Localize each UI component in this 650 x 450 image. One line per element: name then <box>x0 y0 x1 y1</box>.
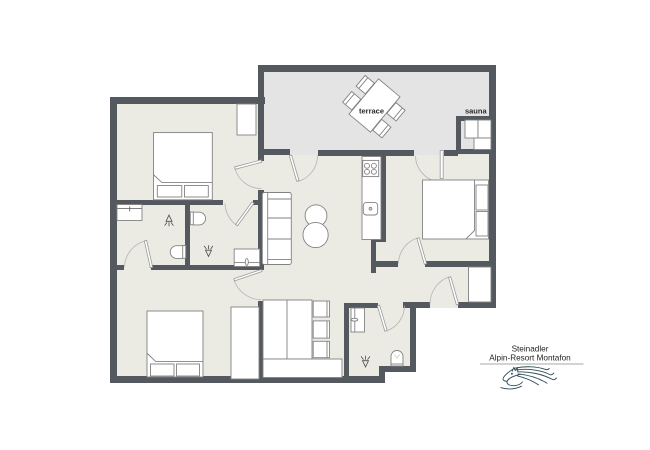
svg-text:sauna: sauna <box>465 107 488 116</box>
svg-text:Steinadler: Steinadler <box>512 345 549 354</box>
svg-text:terrace: terrace <box>359 107 384 116</box>
svg-text:Alpin-Resort Montafon: Alpin-Resort Montafon <box>489 354 571 363</box>
